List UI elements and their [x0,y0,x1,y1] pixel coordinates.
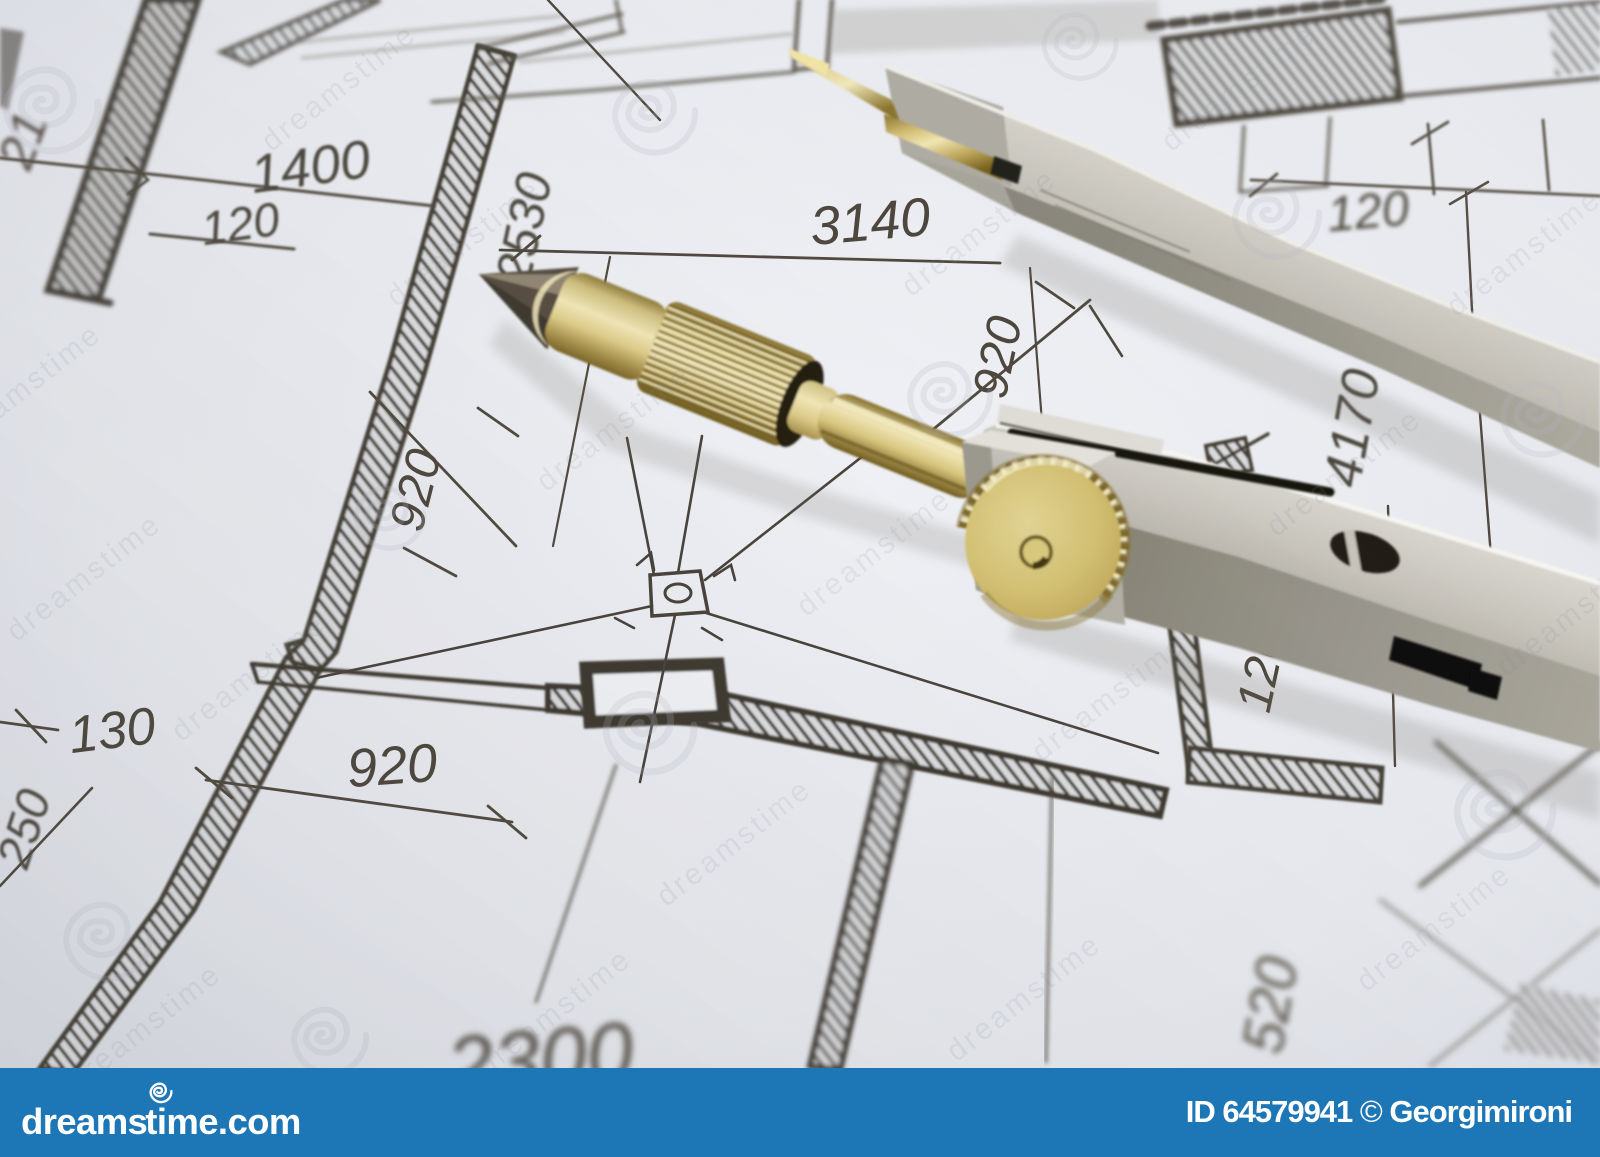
svg-text:ID 64579941 © Georgimironi: ID 64579941 © Georgimironi [1186,1094,1572,1129]
svg-text:dreamstime.com: dreamstime.com [21,1101,301,1142]
